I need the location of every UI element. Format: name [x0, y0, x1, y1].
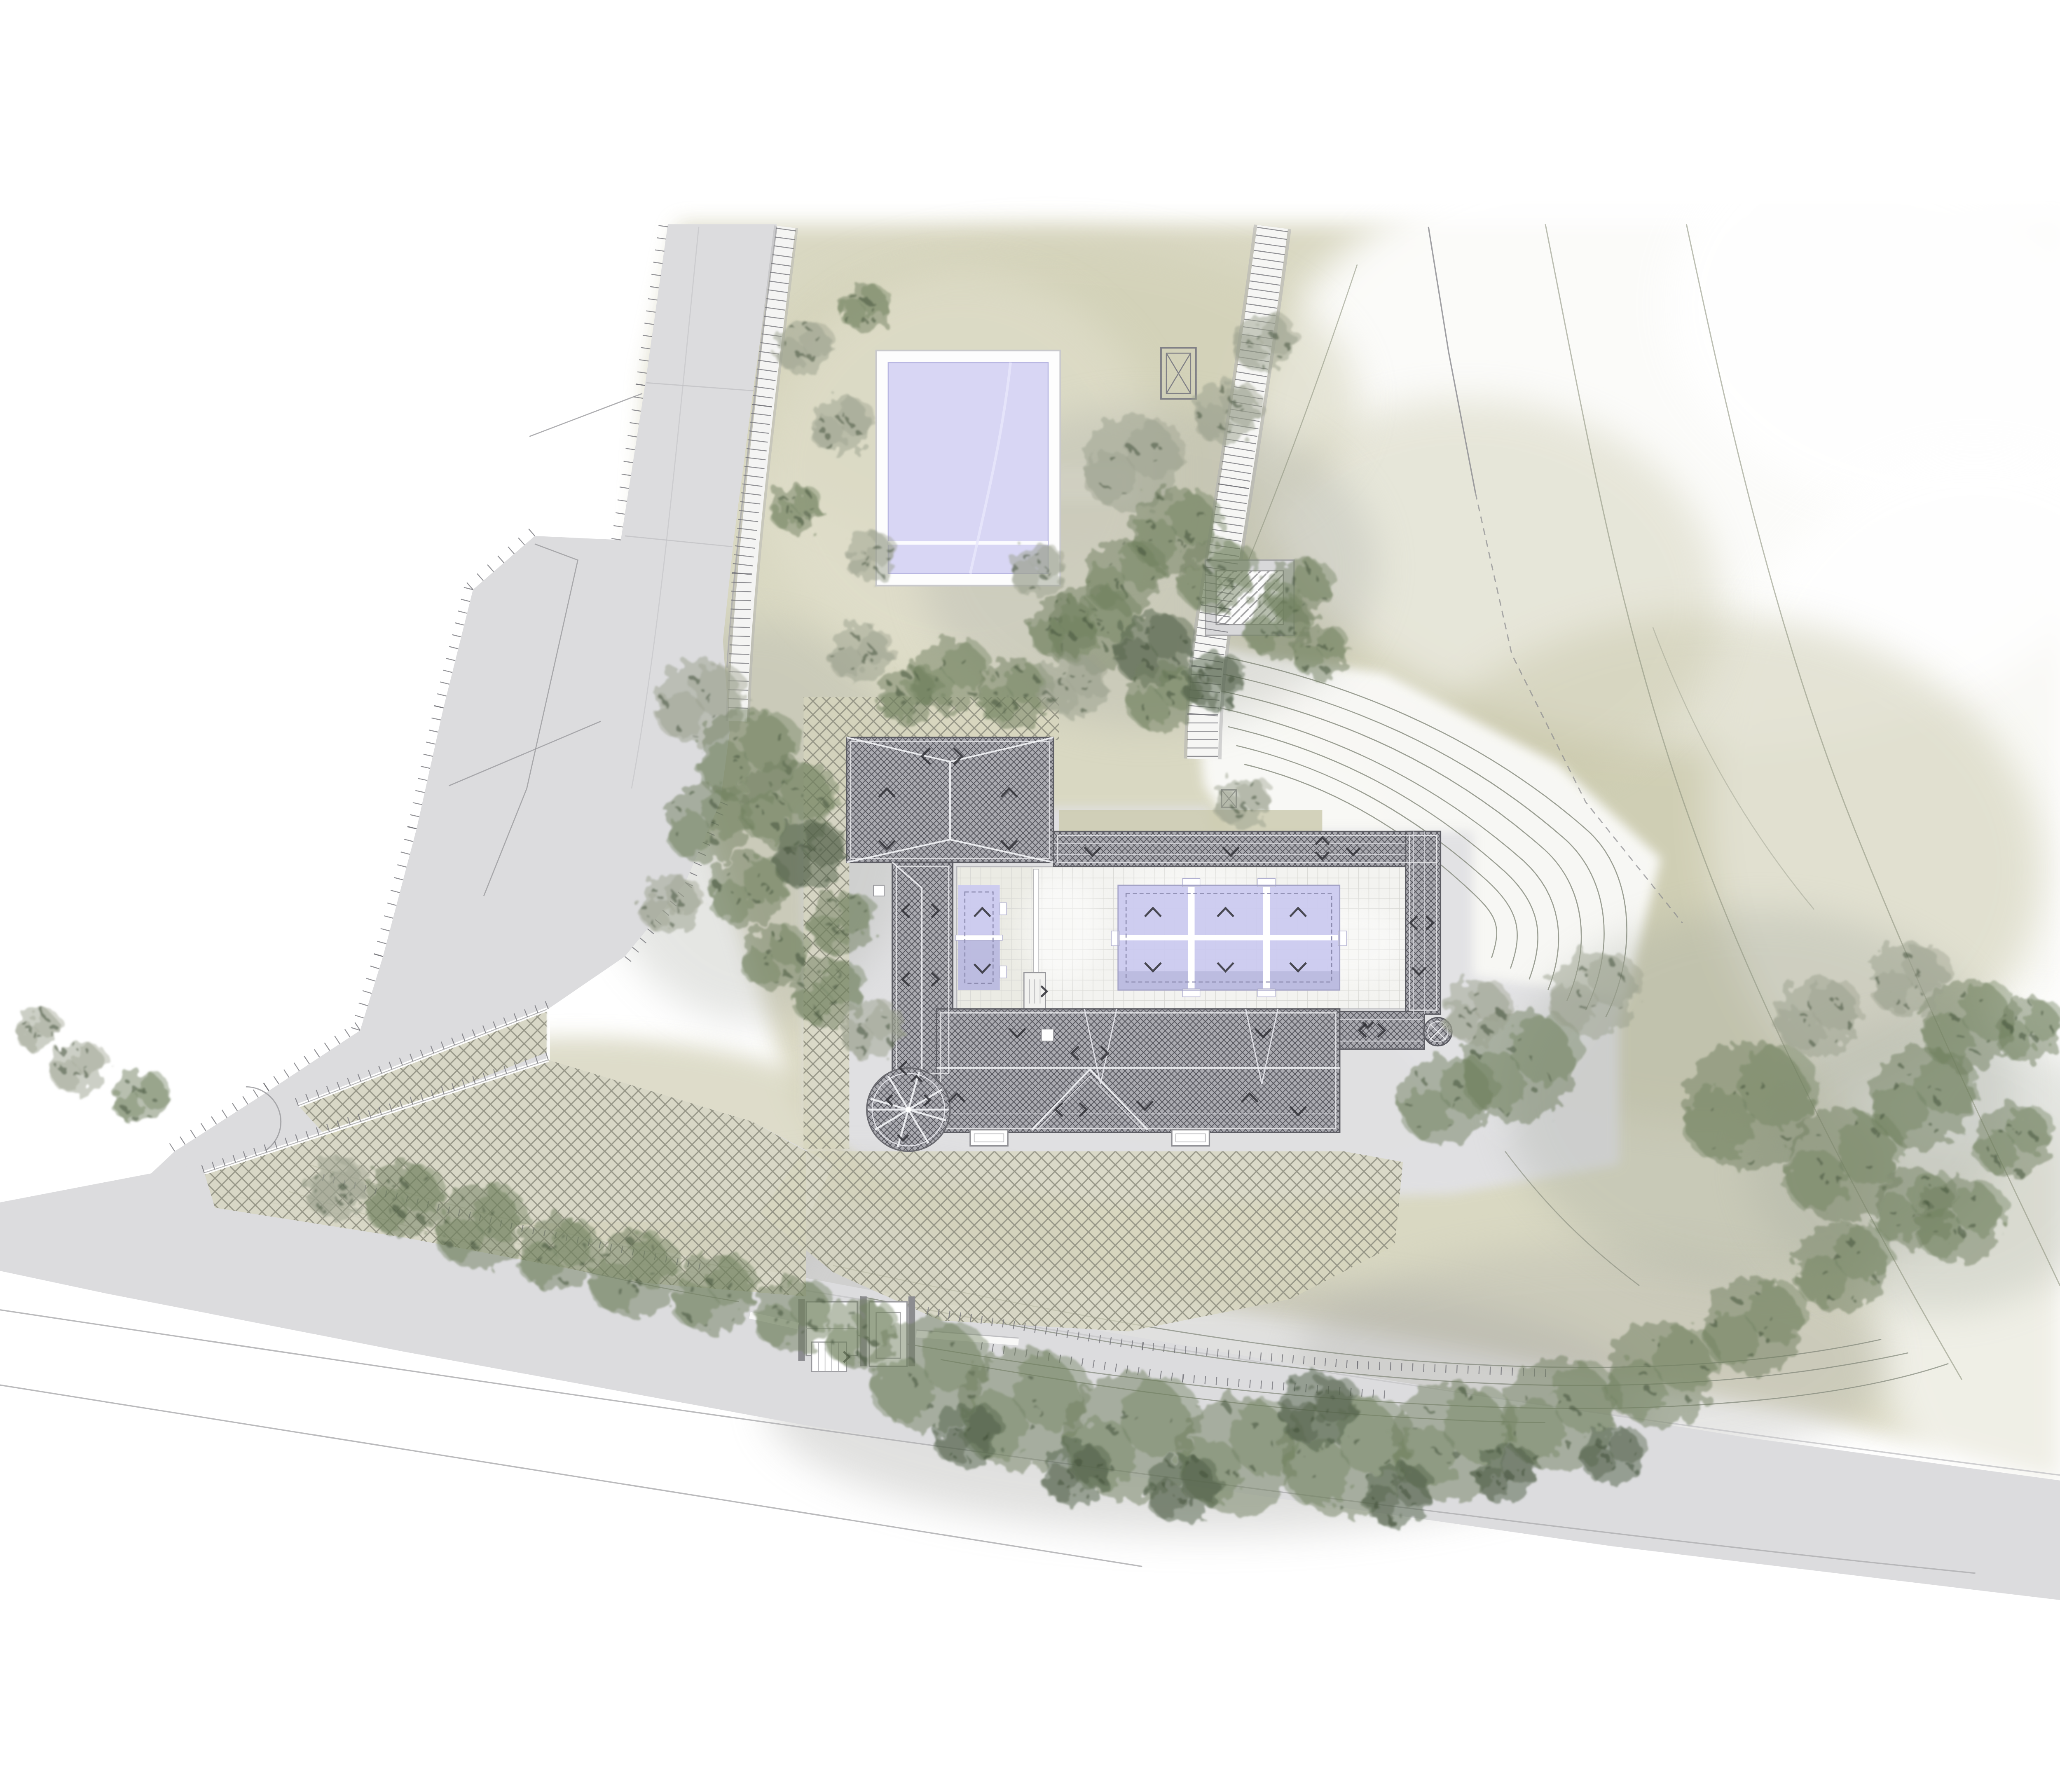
tree-speckle	[1619, 1006, 1623, 1010]
tree-speckle	[1246, 340, 1252, 346]
tree-speckle	[1779, 1130, 1787, 1138]
tree-speckle	[815, 1011, 823, 1018]
tree-speckle	[662, 699, 668, 705]
tree-speckle	[1234, 781, 1238, 785]
tree-speckle	[1611, 1465, 1617, 1471]
tree-speckle	[676, 900, 683, 908]
tree-speckle	[650, 1271, 654, 1275]
tree-speckle	[775, 1319, 779, 1323]
tree-canopy-blob	[840, 301, 866, 328]
tree-speckle	[1226, 696, 1233, 703]
tree-canopy-blob	[365, 1189, 407, 1231]
tree-speckle	[735, 760, 739, 764]
tree-speckle	[847, 1355, 852, 1359]
tree-speckle	[1297, 659, 1301, 663]
tree-speckle	[1833, 999, 1841, 1006]
tree-speckle	[1467, 1003, 1473, 1008]
tree-speckle	[1390, 1480, 1394, 1484]
tree-speckle	[818, 847, 822, 852]
tree-speckle	[1418, 1074, 1423, 1080]
tree-speckle	[970, 691, 977, 698]
tree-speckle	[1501, 1108, 1507, 1114]
tree-speckle	[59, 1048, 66, 1055]
tree-speckle	[1938, 1089, 1942, 1093]
tree-speckle	[1175, 660, 1180, 664]
tree-speckle	[1164, 1485, 1168, 1489]
tree-speckle	[761, 877, 765, 881]
tree-speckle	[1520, 1041, 1524, 1045]
tree-speckle	[1271, 1443, 1276, 1447]
tree-speckle	[1197, 413, 1203, 419]
tree-speckle	[694, 678, 701, 685]
slope-wall-ticks	[1362, 1389, 1362, 1397]
tree-speckle	[1312, 1475, 1316, 1479]
tree-speckle	[1765, 1327, 1770, 1331]
tree-canopy-blob	[1029, 619, 1065, 654]
tree-speckle	[1765, 1313, 1770, 1317]
tree-speckle	[1483, 1462, 1489, 1468]
tree-speckle	[1287, 590, 1293, 596]
tree-speckle	[788, 1322, 792, 1326]
tree-speckle	[808, 1001, 812, 1006]
tree-speckle	[1760, 1084, 1766, 1090]
tree-canopy-blob	[1282, 1438, 1350, 1506]
tree-speckle	[1046, 695, 1054, 702]
tree-speckle	[1304, 564, 1311, 572]
tree-speckle	[794, 788, 799, 793]
tree-speckle	[1836, 1177, 1843, 1184]
tree-speckle	[1011, 566, 1019, 573]
tree-speckle	[1202, 672, 1208, 678]
tree-speckle	[545, 1245, 552, 1252]
tree-canopy-blob	[1216, 795, 1246, 824]
tree-speckle	[726, 1292, 730, 1296]
tree-speckle	[1959, 1230, 1967, 1238]
tree-speckle	[84, 1067, 89, 1071]
tree-speckle	[1633, 1452, 1637, 1456]
tree-speckle	[1041, 564, 1045, 568]
tree-speckle	[868, 299, 872, 303]
slope-wall-ticks	[1216, 1377, 1217, 1385]
tree-speckle	[1744, 1155, 1752, 1163]
tree-speckle	[1475, 993, 1481, 999]
tree-speckle	[939, 667, 943, 671]
tree-speckle	[1231, 806, 1235, 810]
tree-canopy-blob	[774, 846, 812, 884]
tree-speckle	[1320, 642, 1325, 648]
tree-speckle	[1607, 1441, 1611, 1446]
tree-canopy	[1997, 998, 2060, 1063]
tree-speckle	[861, 553, 867, 559]
tree-speckle	[1289, 576, 1297, 584]
tree-speckle	[1630, 1465, 1636, 1471]
tree-speckle	[1251, 795, 1257, 800]
tree-speckle	[1169, 540, 1173, 544]
tree-canopy-blob	[1127, 688, 1166, 726]
tree-speckle	[1065, 1469, 1070, 1474]
tree-speckle	[1009, 699, 1016, 707]
tree-speckle	[694, 735, 698, 739]
tree-speckle	[1903, 1068, 1907, 1072]
tree-speckle	[1523, 1395, 1527, 1399]
tree-speckle	[1113, 459, 1119, 464]
slope-wall-ticks	[1272, 1382, 1273, 1390]
tree-speckle	[1622, 977, 1627, 981]
tree-speckle	[1156, 631, 1160, 635]
tree-speckle	[869, 306, 873, 310]
tree-speckle	[1108, 1426, 1115, 1433]
tree-speckle	[1472, 1035, 1477, 1039]
tree-speckle	[1138, 702, 1143, 707]
tree-speckle	[1832, 1253, 1839, 1260]
tree-speckle	[1305, 643, 1309, 648]
tree-speckle	[901, 701, 907, 707]
tree-speckle	[1714, 1149, 1718, 1153]
tree-speckle	[460, 1196, 464, 1200]
tree-speckle	[819, 873, 825, 878]
tree-speckle	[982, 1453, 989, 1460]
tree-speckle	[1073, 677, 1077, 681]
tree-speckle	[1933, 1128, 1939, 1133]
tree-speckle	[1204, 566, 1208, 571]
tree-speckle	[685, 1313, 691, 1319]
tree-speckle	[1339, 1505, 1343, 1509]
roof-vent	[873, 885, 884, 896]
tree-speckle	[1228, 676, 1235, 683]
tree-speckle	[798, 981, 802, 985]
tree-speckle	[1810, 1041, 1814, 1045]
tree-speckle	[861, 1357, 868, 1364]
tree-speckle	[1880, 1114, 1887, 1121]
tree-speckle	[861, 296, 868, 304]
tree-speckle	[889, 558, 893, 562]
tree-speckle	[1238, 406, 1243, 410]
tree-speckle	[1800, 1012, 1806, 1018]
tree-speckle	[1463, 1391, 1469, 1397]
tree-speckle	[1644, 1386, 1652, 1393]
tree-speckle	[1183, 1460, 1189, 1465]
tree-canopy-blob	[1234, 335, 1266, 367]
skylight-tab	[1000, 966, 1007, 978]
tree-speckle	[443, 1238, 450, 1246]
tree-speckle	[138, 1087, 145, 1094]
tree-speckle	[1925, 1178, 1932, 1185]
tree-speckle	[716, 884, 723, 891]
tree-canopy-blob	[519, 1243, 560, 1284]
slope-wall-ticks	[1373, 1390, 1374, 1398]
tree-speckle	[968, 1392, 975, 1400]
tree-speckle	[1407, 1103, 1412, 1109]
site-plan-page: Architectural site plan — courtyard hous…	[0, 0, 2060, 1792]
slope-wall-ticks	[1283, 1383, 1284, 1391]
tree-speckle	[723, 1280, 731, 1287]
tree-speckle	[807, 515, 813, 521]
tree-speckle	[709, 1280, 717, 1287]
tree-speckle	[831, 863, 836, 867]
tree-speckle	[1957, 1033, 1963, 1039]
tree-canopy-blob	[656, 691, 703, 738]
tree-speckle	[844, 415, 848, 419]
tree-speckle	[791, 326, 795, 330]
slope-wall-ticks	[1384, 1390, 1385, 1399]
tree-speckle	[1035, 553, 1039, 557]
sidewalk-steps	[730, 636, 750, 636]
tree-speckle	[1255, 334, 1261, 340]
tree-speckle	[700, 836, 705, 840]
slope-wall-ticks	[1368, 1362, 1369, 1370]
tree-speckle	[835, 642, 840, 648]
tree-speckle	[1924, 1082, 1929, 1086]
tree-speckle	[1084, 688, 1090, 693]
tree-speckle	[775, 934, 780, 940]
tree-speckle	[1263, 632, 1267, 636]
tree-speckle	[1508, 1474, 1515, 1481]
tree-speckle	[1566, 1443, 1574, 1450]
tree-speckle	[1316, 643, 1320, 647]
tree-speckle	[1820, 1173, 1827, 1180]
tree-speckle	[1529, 1056, 1533, 1060]
tree-speckle	[1485, 1028, 1493, 1036]
slope-wall-ticks	[1435, 1364, 1435, 1373]
tree-speckle	[1496, 1448, 1502, 1453]
tree-speckle	[332, 1175, 337, 1181]
tree-speckle	[707, 699, 712, 703]
tree-speckle	[1202, 678, 1206, 683]
tree-speckle	[1913, 969, 1920, 976]
tree-speckle	[880, 1013, 885, 1017]
tree-speckle	[1177, 1495, 1184, 1502]
tree-speckle	[1869, 1167, 1875, 1173]
tree-canopy-blob	[831, 646, 863, 679]
tree-speckle	[313, 1188, 317, 1193]
tree-speckle	[1218, 604, 1226, 611]
tree-speckle	[649, 1244, 653, 1248]
tree-speckle	[801, 844, 809, 851]
tree-speckle	[819, 797, 824, 803]
tree-speckle	[993, 670, 997, 674]
tree-speckle	[1474, 1052, 1482, 1059]
tree-speckle	[2029, 1001, 2033, 1006]
tree-speckle	[1891, 1211, 1897, 1217]
tree-speckle	[1230, 415, 1234, 419]
tree-speckle	[1848, 1239, 1855, 1247]
tree-speckle	[674, 907, 679, 911]
slope-wall-ticks	[1182, 1374, 1183, 1383]
tree-speckle	[1255, 1425, 1262, 1432]
tree-speckle	[1993, 1156, 2001, 1164]
tree-speckle	[1925, 1201, 1929, 1205]
tree-speckle	[1904, 1003, 1908, 1007]
tree-speckle	[1752, 1288, 1756, 1292]
tree-speckle	[773, 731, 781, 738]
tree-speckle	[734, 896, 741, 904]
tree-speckle	[1135, 678, 1140, 684]
tree-speckle	[48, 1022, 56, 1029]
tree-speckle	[1624, 1434, 1628, 1438]
tree-speckle	[780, 496, 787, 503]
tree-speckle	[860, 560, 866, 566]
sidewalk-steps	[732, 573, 752, 573]
tree-speckle	[1129, 447, 1136, 454]
tree-speckle	[995, 692, 999, 697]
slope-wall-ticks	[1412, 1363, 1413, 1371]
tree-canopy-blob	[935, 1427, 971, 1463]
tree-speckle	[1234, 810, 1241, 818]
tree-speckle	[944, 663, 950, 669]
tree-speckle	[1179, 635, 1183, 639]
round-pavilion-hub	[906, 1107, 911, 1112]
tree-speckle	[2010, 1127, 2014, 1131]
tree-speckle	[1198, 512, 1206, 519]
tree-speckle	[1506, 1043, 1514, 1051]
tree-speckle	[764, 962, 768, 966]
tree-speckle	[798, 881, 803, 887]
pool-step-line	[888, 541, 1048, 545]
tree-speckle	[820, 428, 827, 435]
tree-speckle	[1579, 993, 1585, 999]
tree-speckle	[536, 1256, 544, 1263]
tree-speckle	[391, 1197, 396, 1201]
tree-speckle	[1230, 582, 1238, 590]
tree-speckle	[1933, 1228, 1937, 1233]
tree-speckle	[1225, 427, 1229, 431]
tree-speckle	[870, 540, 878, 548]
tree-speckle	[1582, 1006, 1588, 1012]
tree-speckle	[760, 809, 764, 814]
tree-speckle	[836, 415, 840, 419]
tree-speckle	[1382, 1456, 1389, 1464]
tree-speckle	[1690, 1340, 1694, 1345]
tree-speckle	[1251, 348, 1255, 352]
tree-speckle	[345, 1195, 352, 1203]
tree-speckle	[1057, 678, 1064, 685]
tree-speckle	[1978, 997, 1982, 1001]
tree-speckle	[1898, 1224, 1902, 1228]
tree-speckle	[871, 318, 875, 322]
tree-speckle	[33, 1034, 37, 1038]
slope-wall-ticks	[1490, 1366, 1491, 1375]
tree-speckle	[1846, 1022, 1854, 1030]
tree-speckle	[747, 857, 751, 861]
tree-speckle	[1292, 1383, 1299, 1391]
tree-speckle	[741, 777, 745, 781]
tree-speckle	[1463, 1018, 1467, 1022]
tree-speckle	[40, 1010, 48, 1018]
tree-speckle	[867, 1020, 871, 1024]
tree-speckle	[134, 1117, 140, 1123]
tree-speckle	[815, 336, 821, 342]
tree-speckle	[689, 791, 695, 796]
tree-speckle	[653, 889, 659, 895]
tree-canopy-blob	[1475, 1466, 1508, 1498]
tree-speckle	[1316, 1388, 1323, 1396]
tree-speckle	[1246, 778, 1252, 784]
tree-speckle	[1969, 1223, 1976, 1231]
tree-speckle	[1969, 1193, 1975, 1198]
tree-speckle	[785, 847, 793, 855]
tree-speckle	[1198, 692, 1202, 696]
tree-speckle	[1209, 668, 1215, 674]
roof-turret-link	[1340, 1011, 1424, 1049]
tree-speckle	[616, 1287, 621, 1293]
tree-speckle	[1324, 1408, 1328, 1412]
tree-speckle	[1701, 1364, 1707, 1370]
tree-speckle	[1123, 543, 1127, 547]
tree-canopy-blob	[1266, 581, 1301, 616]
tree-canopy-blob	[1922, 1013, 1972, 1063]
tree-speckle	[1849, 1295, 1854, 1299]
tree-canopy-blob	[1400, 1088, 1451, 1138]
tree-speckle	[149, 1116, 153, 1120]
tree-canopy-blob	[1976, 1130, 2017, 1172]
tree-speckle	[782, 970, 789, 978]
tree-speckle	[1062, 671, 1066, 676]
tree-speckle	[835, 985, 840, 991]
tree-speckle	[1941, 1186, 1947, 1191]
tree-canopy-blob	[1550, 981, 1597, 1029]
tree-speckle	[703, 692, 710, 699]
tree-speckle	[630, 1283, 636, 1289]
tree-speckle	[916, 702, 920, 707]
roof-north-wing	[1053, 831, 1440, 866]
tree-speckle	[733, 735, 739, 741]
tree-speckle	[864, 910, 868, 914]
tree-speckle	[845, 1322, 849, 1326]
tree-speckle	[581, 1262, 586, 1268]
tree-speckle	[856, 929, 860, 933]
tree-speckle	[1608, 959, 1615, 966]
tree-speckle	[798, 353, 805, 360]
tree-speckle	[929, 690, 933, 694]
tree-speckle	[562, 1236, 566, 1240]
skylight-main-shade	[1118, 971, 1340, 990]
tree-speckle	[864, 655, 871, 662]
tree-canopy-blob	[113, 1090, 143, 1120]
tree-speckle	[766, 887, 772, 893]
tree-speckle	[1030, 673, 1036, 679]
tree-speckle	[1300, 1453, 1306, 1459]
sidewalk-steps	[730, 618, 751, 618]
tree-speckle	[713, 823, 720, 831]
tree-speckle	[1684, 1396, 1690, 1401]
slope-wall-ticks	[1423, 1364, 1424, 1372]
tree-speckle	[986, 1367, 990, 1371]
tree-speckle	[1454, 1081, 1462, 1089]
tree-speckle	[1103, 484, 1109, 490]
tree-speckle	[1053, 630, 1060, 638]
tree-speckle	[1821, 1162, 1825, 1166]
tree-speckle	[1323, 667, 1330, 674]
tree-canopy-blob	[871, 1359, 933, 1421]
tree-speckle	[1402, 1489, 1408, 1495]
tree-speckle	[2050, 1027, 2056, 1033]
tree-canopy-blob	[825, 1324, 864, 1363]
tree-speckle	[1746, 1351, 1752, 1357]
roof-vent	[1042, 1029, 1053, 1041]
tree-speckle	[1416, 1125, 1421, 1129]
tree-speckle	[1250, 616, 1255, 620]
skylight-mullion	[1118, 935, 1340, 940]
tree-speckle	[39, 1036, 43, 1040]
tree-canopy-blob	[879, 689, 911, 722]
tree-speckle	[482, 1209, 487, 1213]
tree-speckle	[846, 318, 852, 324]
garden-strip	[1059, 810, 1322, 833]
tree-speckle	[1112, 575, 1116, 580]
tree-speckle	[794, 514, 800, 519]
tree-speckle	[1080, 708, 1086, 714]
tree-speckle	[1601, 1453, 1609, 1460]
